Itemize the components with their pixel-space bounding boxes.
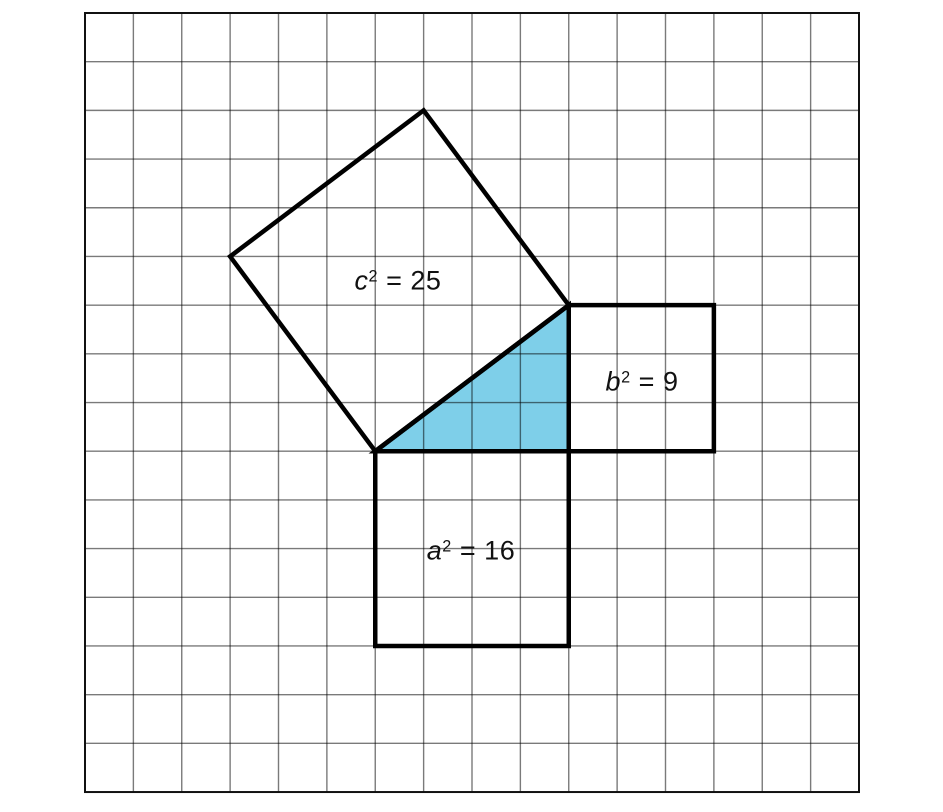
c-variable: c xyxy=(355,266,369,296)
b-exponent: 2 xyxy=(621,369,631,387)
c-equation: = 25 xyxy=(386,266,441,296)
pythagorean-theorem-diagram xyxy=(0,0,943,812)
a-exponent: 2 xyxy=(442,538,452,556)
b-variable: b xyxy=(606,367,622,397)
pythagorean-diagram-canvas: c2= 25 b2= 9 a2= 16 xyxy=(0,0,943,812)
b-square-label: b2= 9 xyxy=(606,369,679,396)
a-equation: = 16 xyxy=(460,536,515,566)
c-square-label: c2= 25 xyxy=(355,268,442,295)
c-exponent: 2 xyxy=(369,268,379,286)
a-square-label: a2= 16 xyxy=(427,538,515,565)
b-equation: = 9 xyxy=(639,367,679,397)
a-variable: a xyxy=(427,536,443,566)
